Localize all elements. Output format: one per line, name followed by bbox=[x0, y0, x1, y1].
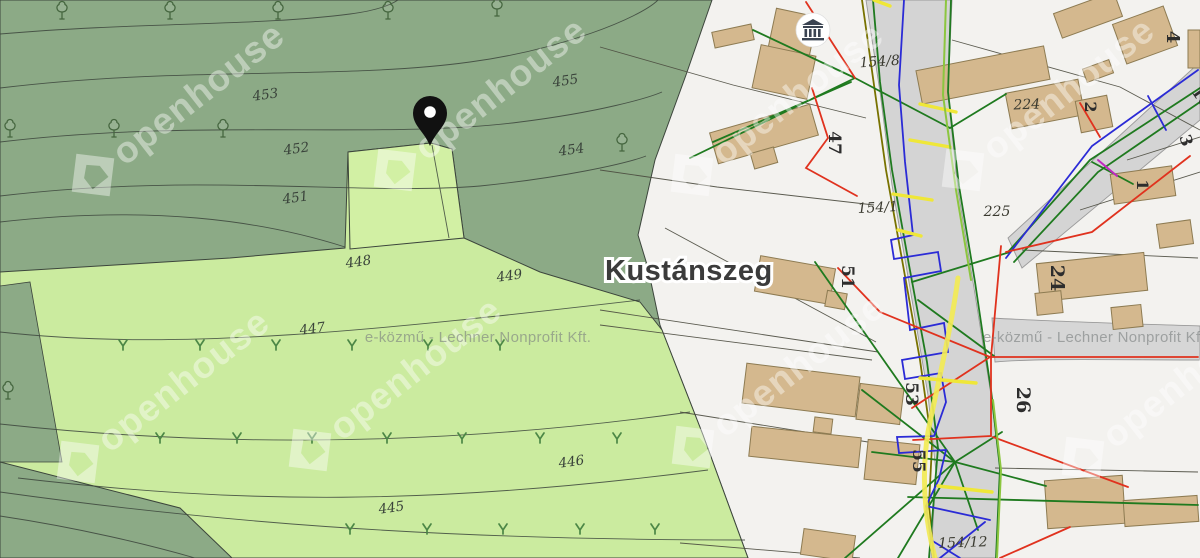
house-number-55: 55 bbox=[908, 449, 928, 473]
house-number-2: 2 bbox=[1081, 101, 1100, 112]
utility-attribution-watermark: e-közmű - Lechner Nonprofit Kft. bbox=[983, 329, 1200, 346]
house-number-4: 4 bbox=[1162, 31, 1183, 44]
house-number-53: 53 bbox=[901, 382, 921, 406]
museum-icon[interactable] bbox=[796, 13, 830, 47]
house-number-1: 1 bbox=[1133, 179, 1152, 190]
house-number-26: 26 bbox=[1012, 387, 1034, 413]
lot-label-154-1: 154/1 bbox=[857, 199, 898, 217]
lot-label-225: 225 bbox=[983, 204, 1011, 220]
map-canvas[interactable]: 453452451455454448449447446445154/822415… bbox=[0, 0, 1200, 558]
lot-label-154-12: 154/12 bbox=[938, 534, 988, 552]
house-number-51: 51 bbox=[837, 265, 857, 289]
house-number-24: 24 bbox=[1046, 265, 1068, 291]
utility-attribution-watermark: e-közmű - Lechner Nonprofit Kft. bbox=[365, 329, 591, 346]
town-label: Kustánszeg bbox=[605, 255, 773, 287]
map-view[interactable]: 453452451455454448449447446445154/822415… bbox=[0, 0, 1200, 558]
house-number-47: 47 bbox=[824, 131, 844, 155]
